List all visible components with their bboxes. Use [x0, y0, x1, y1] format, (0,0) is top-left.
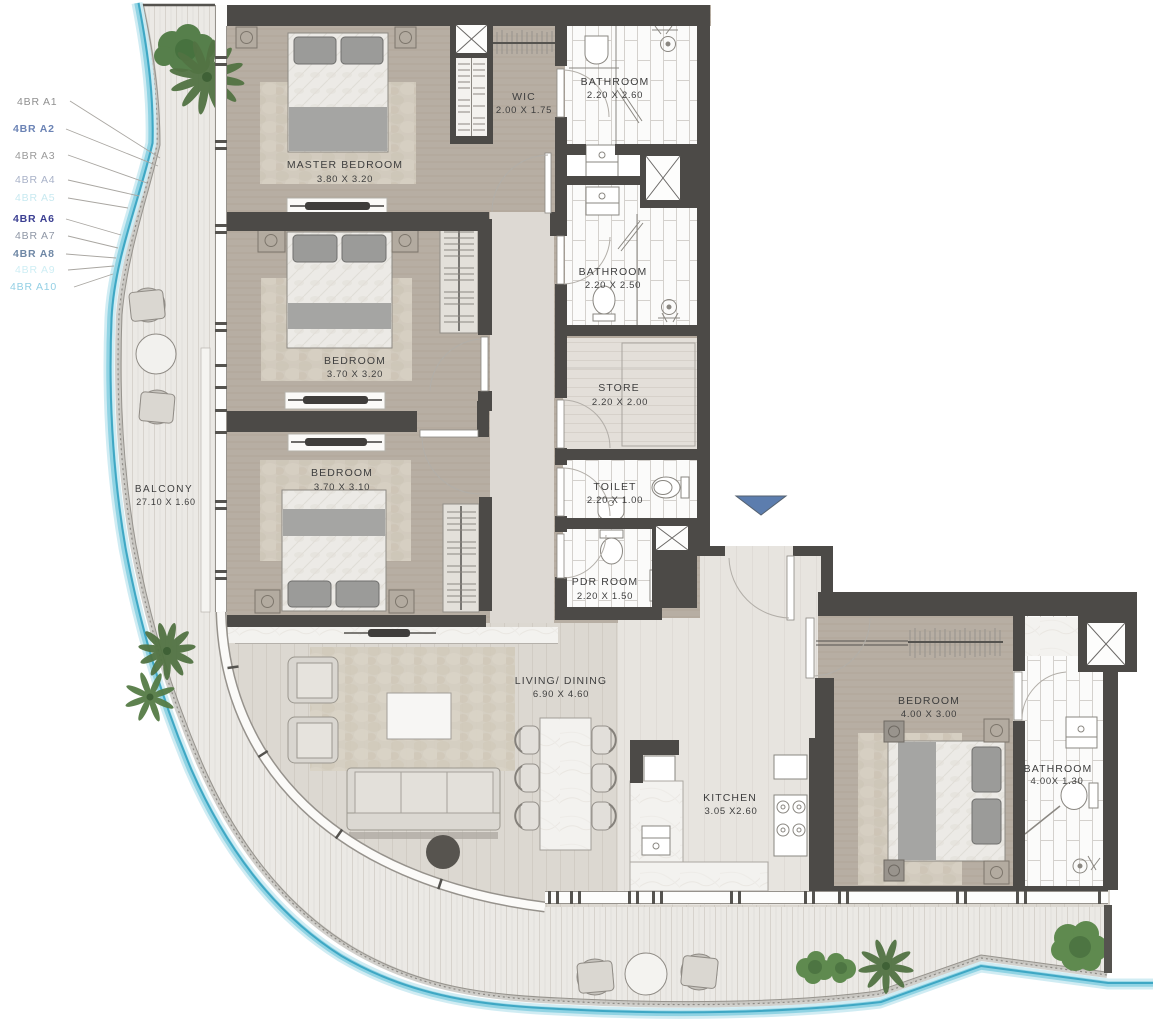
- svg-text:4.00X 1.30: 4.00X 1.30: [1031, 776, 1084, 787]
- svg-text:2.20 X 1.50: 2.20 X 1.50: [577, 591, 633, 602]
- svg-text:BEDROOM: BEDROOM: [324, 355, 386, 367]
- svg-text:4BR A5: 4BR A5: [15, 192, 55, 204]
- svg-text:BATHROOM: BATHROOM: [1024, 763, 1093, 775]
- svg-text:4BR A6: 4BR A6: [13, 213, 55, 225]
- svg-text:STORE: STORE: [598, 382, 639, 394]
- svg-text:4BR A7: 4BR A7: [15, 230, 55, 242]
- svg-text:3.70 X 3.20: 3.70 X 3.20: [327, 369, 383, 380]
- svg-text:3.80 X 3.20: 3.80 X 3.20: [317, 174, 373, 185]
- svg-text:2.20 X 2.00: 2.20 X 2.00: [592, 397, 648, 408]
- svg-text:BEDROOM: BEDROOM: [311, 467, 373, 479]
- svg-text:BALCONY: BALCONY: [135, 484, 193, 495]
- svg-text:4BR A8: 4BR A8: [13, 248, 55, 260]
- svg-text:TOILET: TOILET: [593, 481, 636, 493]
- svg-text:27.10 X 1.60: 27.10 X 1.60: [136, 497, 195, 507]
- svg-text:BATHROOM: BATHROOM: [581, 76, 650, 88]
- svg-text:2.00 X 1.75: 2.00 X 1.75: [496, 105, 552, 116]
- svg-text:4BR A4: 4BR A4: [15, 174, 55, 186]
- svg-text:MASTER BEDROOM: MASTER BEDROOM: [287, 159, 403, 171]
- svg-text:3.05 X2.60: 3.05 X2.60: [705, 806, 758, 817]
- svg-text:KITCHEN: KITCHEN: [703, 792, 757, 804]
- svg-text:4BR A2: 4BR A2: [13, 123, 55, 135]
- svg-text:2.20 X 2.60: 2.20 X 2.60: [587, 90, 643, 101]
- svg-text:4BR A1: 4BR A1: [17, 96, 57, 108]
- svg-text:BATHROOM: BATHROOM: [579, 266, 648, 278]
- svg-text:3.70 X 3.10: 3.70 X 3.10: [314, 482, 370, 493]
- svg-text:4BR A9: 4BR A9: [15, 264, 55, 276]
- svg-text:PDR ROOM: PDR ROOM: [572, 576, 639, 588]
- svg-text:6.90 X 4.60: 6.90 X 4.60: [533, 689, 589, 700]
- svg-text:BEDROOM: BEDROOM: [898, 695, 960, 707]
- svg-text:2.20 X 1.00: 2.20 X 1.00: [587, 495, 643, 506]
- svg-text:WIC: WIC: [512, 91, 536, 103]
- svg-text:4.00 X 3.00: 4.00 X 3.00: [901, 709, 957, 720]
- svg-text:LIVING/ DINING: LIVING/ DINING: [515, 675, 607, 687]
- svg-text:2.20 X 2.50: 2.20 X 2.50: [585, 280, 641, 291]
- svg-text:4BR A3: 4BR A3: [15, 150, 55, 162]
- svg-text:4BR A10: 4BR A10: [10, 281, 57, 293]
